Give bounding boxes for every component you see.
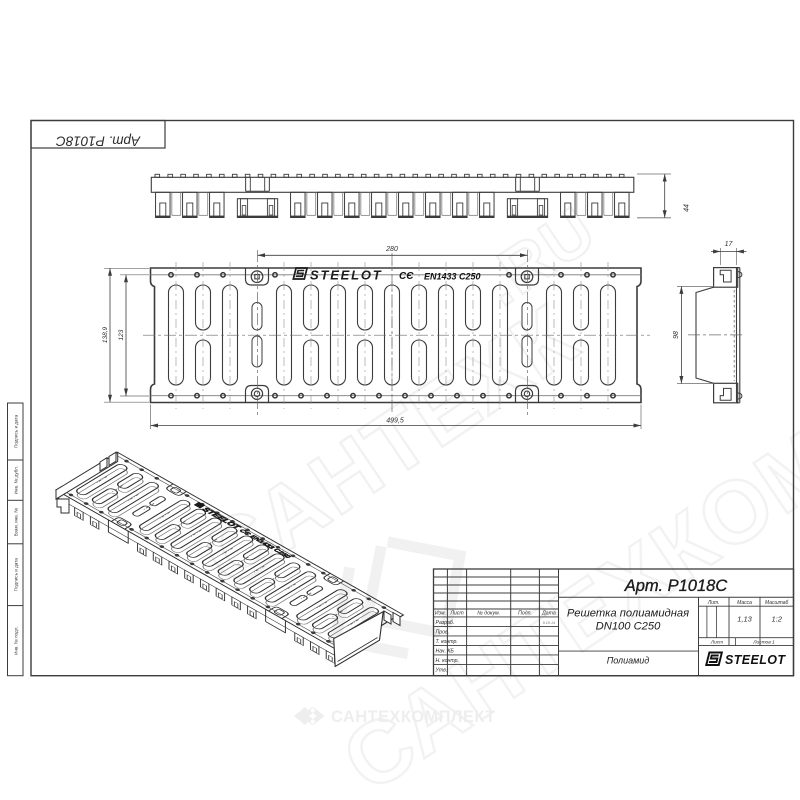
svg-text:№ докум.: № докум.	[477, 611, 500, 617]
svg-text:STEELOT: STEELOT	[310, 267, 383, 282]
svg-text:98: 98	[673, 331, 680, 339]
svg-text:Лист: Лист	[449, 611, 464, 617]
svg-text:STEELOT: STEELOT	[725, 653, 786, 667]
svg-text:Т. контр.: Т. контр.	[436, 639, 458, 645]
svg-text:Арт. P1018C: Арт. P1018C	[56, 134, 141, 149]
svg-text:Полиамид: Полиамид	[607, 656, 650, 666]
svg-text:1,13: 1,13	[737, 615, 752, 624]
svg-text:Решетка полиамидная: Решетка полиамидная	[567, 608, 689, 620]
svg-text:17: 17	[725, 241, 734, 248]
svg-text:Инв. № подл.: Инв. № подл.	[14, 626, 19, 655]
svg-text:Разраб.: Разраб.	[436, 620, 455, 626]
svg-text:Дата: Дата	[541, 611, 556, 617]
svg-text:1:2: 1:2	[771, 615, 782, 624]
svg-text:Утв.: Утв.	[436, 668, 448, 674]
svg-text:Подпись и дата: Подпись и дата	[14, 558, 19, 591]
svg-text:499,5: 499,5	[386, 418, 404, 425]
svg-text:Н. контр.: Н. контр.	[436, 658, 459, 664]
svg-text:Подп.: Подп.	[518, 611, 532, 617]
svg-text:Листов 1: Листов 1	[752, 640, 775, 646]
svg-text:Масса: Масса	[737, 600, 752, 606]
svg-text:Подпись и дата: Подпись и дата	[14, 415, 19, 448]
svg-text:САНТЕХКОМПЛЕКТ: САНТЕХКОМПЛЕКТ	[331, 708, 496, 726]
svg-text:Пров.: Пров.	[436, 630, 450, 636]
svg-text:Лист: Лист	[710, 640, 723, 646]
svg-text:44: 44	[683, 204, 690, 212]
svg-text:138,9: 138,9	[102, 326, 109, 343]
svg-text:Масштаб: Масштаб	[765, 600, 789, 606]
svg-text:9.10.14: 9.10.14	[543, 621, 556, 625]
svg-text:Нач. КБ: Нач. КБ	[436, 649, 455, 655]
svg-text:123: 123	[118, 329, 125, 340]
svg-text:Арт. P1018C: Арт. P1018C	[624, 577, 728, 595]
svg-text:Взам. инв. №: Взам. инв. №	[14, 508, 19, 537]
svg-text:Лит.: Лит.	[707, 600, 720, 606]
svg-text:Изм.: Изм.	[435, 611, 446, 617]
svg-text:CЄ: CЄ	[399, 271, 414, 282]
svg-text:EN1433 C250: EN1433 C250	[424, 271, 481, 281]
svg-text:DN100 C250: DN100 C250	[596, 621, 661, 633]
svg-text:Инв. № дубл.: Инв. № дубл.	[14, 466, 19, 494]
svg-text:280: 280	[385, 246, 398, 253]
